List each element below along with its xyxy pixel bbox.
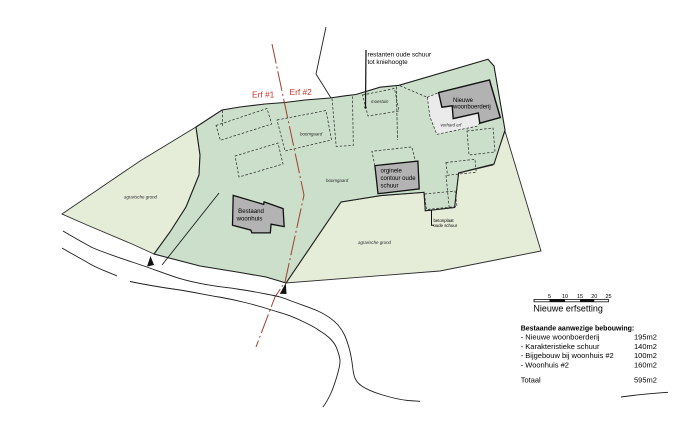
svg-text:woonhuis: woonhuis xyxy=(236,216,263,223)
svg-text:Erf #1: Erf #1 xyxy=(252,90,275,100)
svg-text:140m2: 140m2 xyxy=(634,342,657,351)
svg-text:Nieuwe: Nieuwe xyxy=(453,98,474,104)
svg-text:tot kniehoogte: tot kniehoogte xyxy=(368,59,409,66)
svg-text:595m2: 595m2 xyxy=(634,376,657,385)
svg-text:orginele: orginele xyxy=(381,169,403,175)
svg-text:Bestaand: Bestaand xyxy=(238,208,264,215)
svg-text:boomgaard: boomgaard xyxy=(300,131,323,136)
svg-text:moestuin: moestuin xyxy=(371,99,389,104)
svg-text:Bestaande aanwezige bebouwing:: Bestaande aanwezige bebouwing: xyxy=(521,326,635,333)
svg-text:restanten oude schuur: restanten oude schuur xyxy=(368,52,432,59)
svg-text:agrarische grond: agrarische grond xyxy=(358,240,392,245)
svg-text:5: 5 xyxy=(548,294,551,300)
svg-text:25: 25 xyxy=(605,294,611,300)
svg-text:boomgaard: boomgaard xyxy=(326,178,349,183)
svg-text:15: 15 xyxy=(577,294,583,300)
svg-text:- Bijgebouw bij woonhuis #2: - Bijgebouw bij woonhuis #2 xyxy=(521,351,614,360)
svg-text:agrarische grond: agrarische grond xyxy=(124,195,158,200)
svg-text:schuur: schuur xyxy=(381,184,399,190)
svg-text:- Karakteristieke schuur: - Karakteristieke schuur xyxy=(521,342,600,351)
svg-text:- Woonhuis #2: - Woonhuis #2 xyxy=(521,360,569,369)
svg-text:verhard erf: verhard erf xyxy=(441,123,463,128)
svg-text:Erf #2: Erf #2 xyxy=(290,87,313,97)
svg-text:Nieuwe erfsetting: Nieuwe erfsetting xyxy=(533,303,603,313)
svg-text:- Nieuwe woonboerderij: - Nieuwe woonboerderij xyxy=(521,333,600,342)
svg-text:woonboerderij: woonboerderij xyxy=(452,105,491,111)
svg-text:195m2: 195m2 xyxy=(634,333,657,342)
svg-text:oude schuur: oude schuur xyxy=(434,223,458,228)
svg-text:20: 20 xyxy=(591,294,597,300)
svg-text:Totaal: Totaal xyxy=(521,376,541,385)
svg-text:10: 10 xyxy=(562,294,568,300)
svg-text:160m2: 160m2 xyxy=(634,360,657,369)
svg-text:contour oude: contour oude xyxy=(381,176,417,182)
svg-text:100m2: 100m2 xyxy=(634,351,657,360)
